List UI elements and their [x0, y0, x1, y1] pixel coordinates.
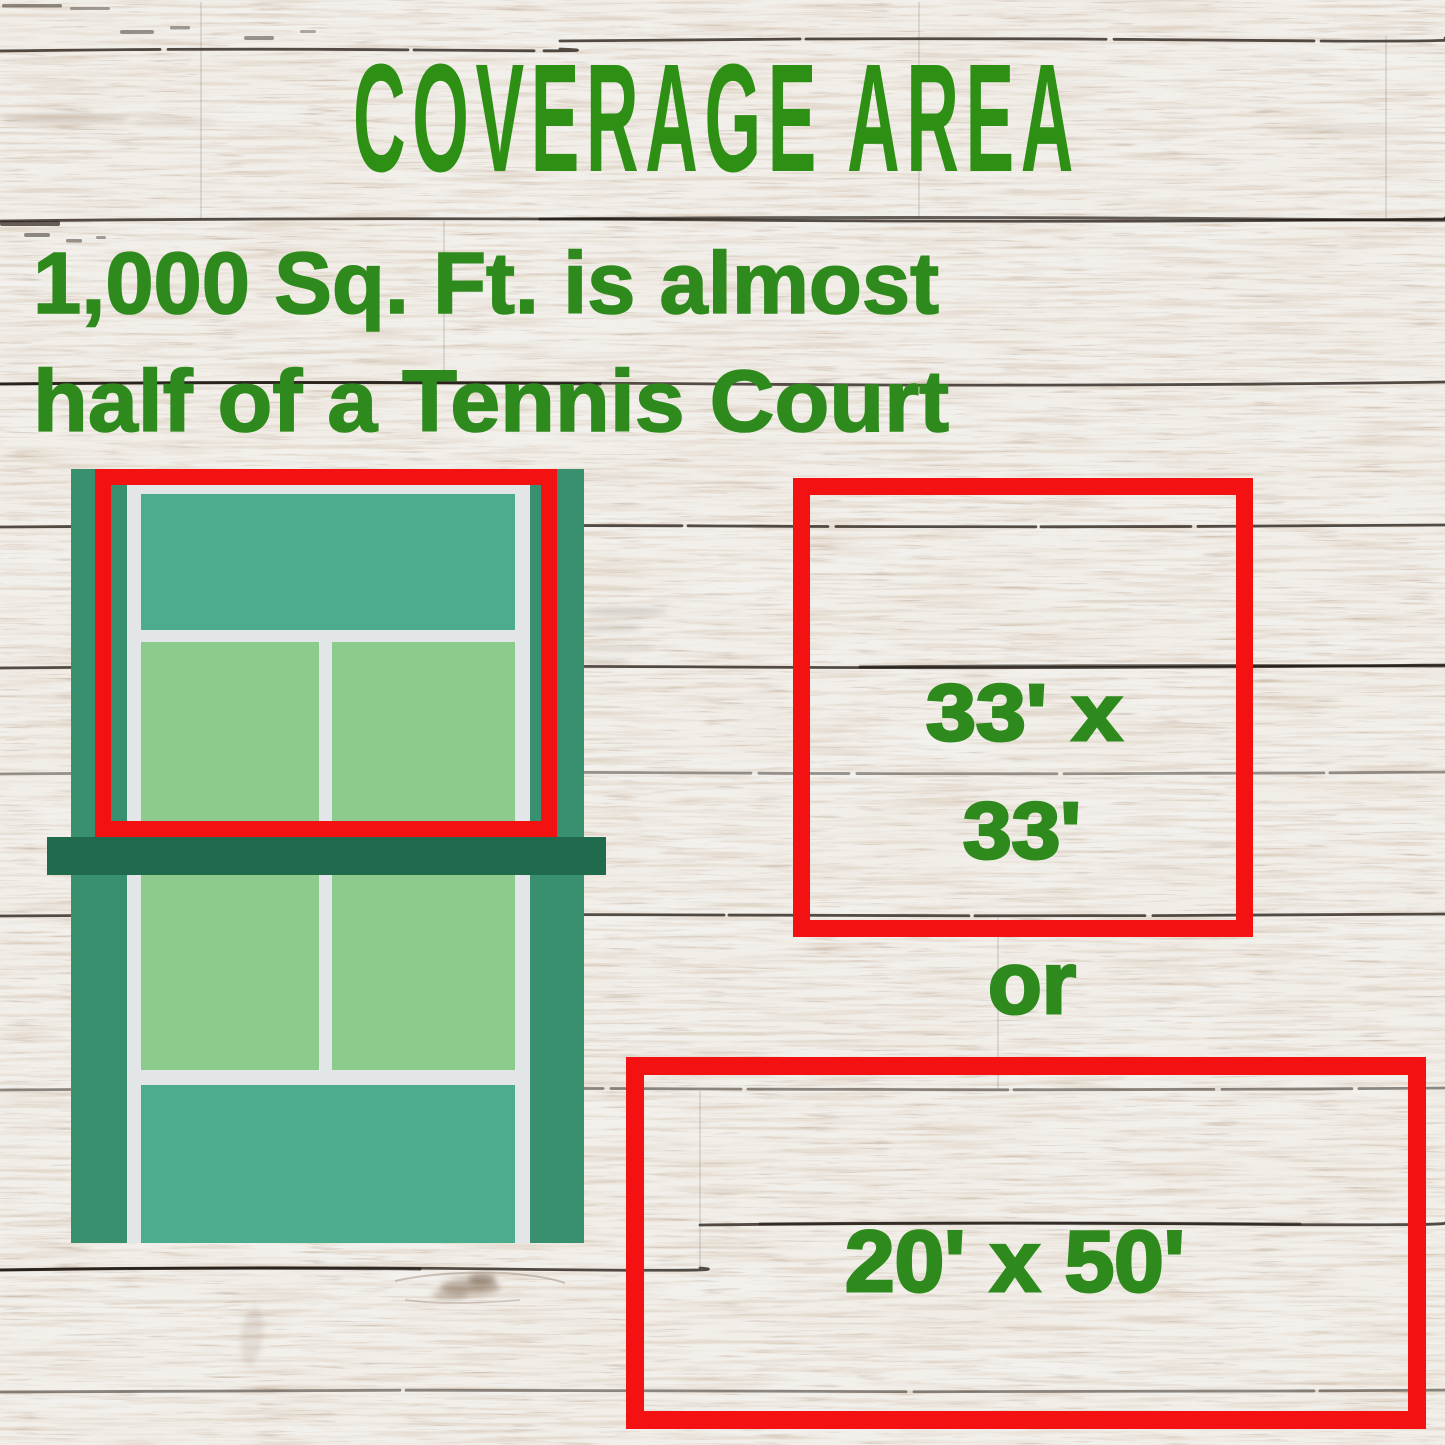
svg-text:half of a Tennis Court: half of a Tennis Court — [33, 352, 949, 450]
svg-text:33': 33' — [963, 786, 1081, 875]
svg-text:or: or — [988, 933, 1076, 1032]
svg-text:COVERAGE AREA: COVERAGE AREA — [353, 32, 1080, 204]
svg-text:20' x 50': 20' x 50' — [845, 1214, 1185, 1310]
svg-text:33' x: 33' x — [926, 668, 1122, 757]
svg-text:1,000 Sq. Ft. is almost: 1,000 Sq. Ft. is almost — [33, 234, 939, 332]
